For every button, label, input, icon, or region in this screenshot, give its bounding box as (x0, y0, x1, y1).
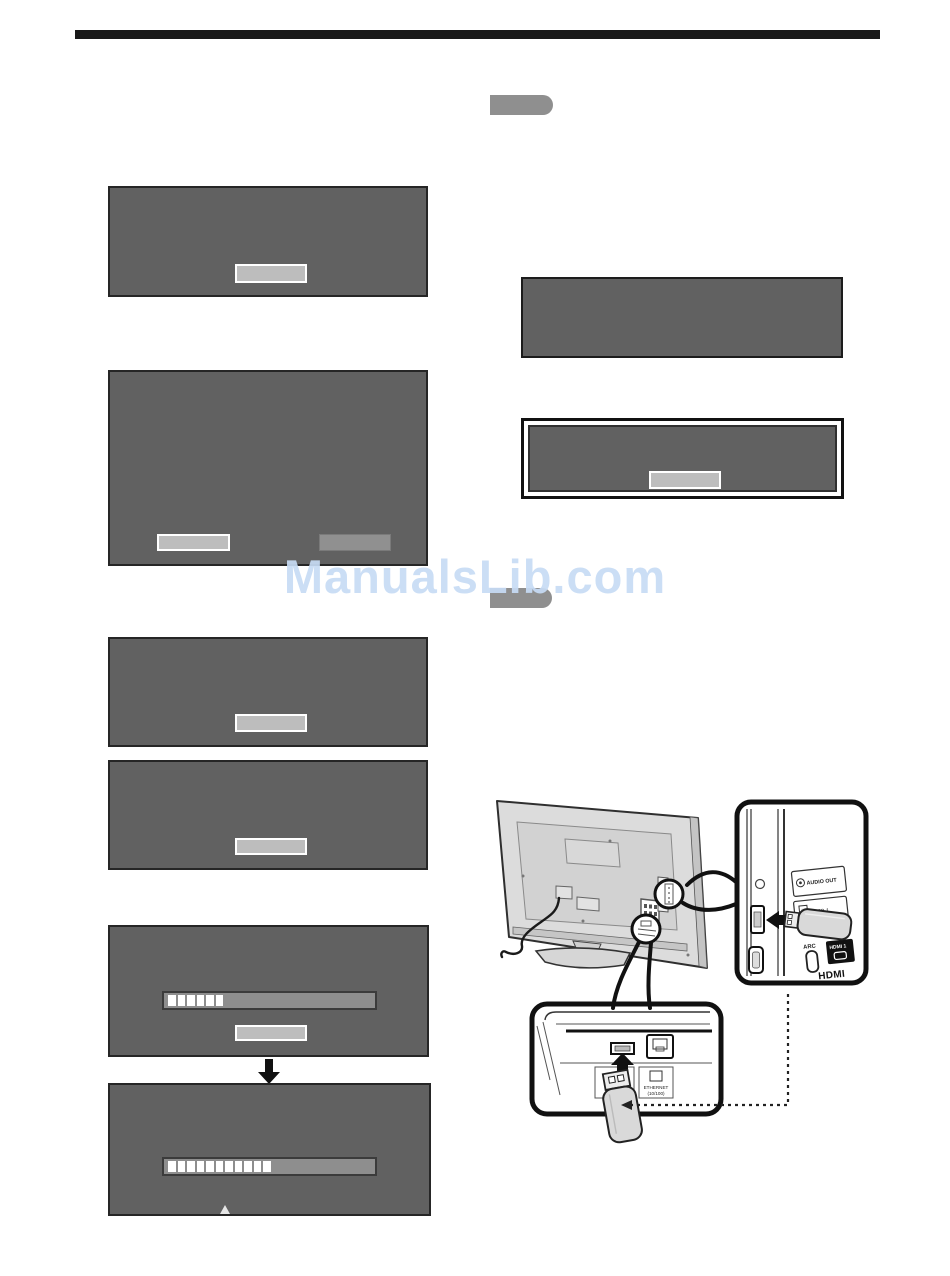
tv-rear-illustration (497, 801, 707, 968)
highlight-circle-rear-usb (632, 915, 660, 943)
header-rule (75, 30, 880, 39)
progress-segment (168, 1161, 176, 1172)
progress-segment (178, 1161, 186, 1172)
progress-segment (235, 1161, 243, 1172)
manualslib-watermark: ManualsLib.com (284, 549, 666, 604)
osd-dialog-1 (108, 186, 428, 297)
progress-segment (216, 995, 224, 1006)
progress-segment (178, 995, 186, 1006)
progress-segment (197, 995, 205, 1006)
section-tab-1 (490, 95, 553, 115)
progress-segment (244, 1161, 252, 1172)
progress-bar-1 (162, 991, 377, 1010)
osd-message-box-right (521, 277, 843, 358)
progress-bar-2 (162, 1157, 377, 1176)
osd-button-highlighted (235, 838, 307, 855)
callout-pointer-right (648, 943, 651, 1008)
osd-button-highlighted (649, 471, 721, 489)
osd-framed-box (521, 418, 844, 499)
progress-segment (254, 1161, 262, 1172)
ethernet-jack-icon (650, 1071, 662, 1081)
tv-stand (536, 948, 630, 968)
osd-dialog-3 (108, 637, 428, 747)
progress-segment (197, 1161, 205, 1172)
osd-button-highlighted (235, 264, 307, 283)
player-ethernet-port (647, 1035, 673, 1058)
osd-framed-box-inner (528, 425, 837, 492)
ethernet-label: ETHERNET (644, 1085, 669, 1090)
flow-down-arrow-icon (258, 1059, 280, 1084)
osd-dialog-4 (108, 760, 428, 870)
progress-segment (168, 995, 176, 1006)
progress-segment (263, 1161, 271, 1172)
osd-dialog-progress-2 (108, 1083, 431, 1216)
osd-button-highlighted (235, 1025, 307, 1041)
progress-segment (187, 1161, 195, 1172)
osd-button-highlighted (157, 534, 230, 551)
progress-segment (216, 1161, 224, 1172)
osd-button-highlighted (235, 714, 307, 732)
tv-side-callout: AUDIO OUT USB 1 ARC HDMI 1 HDMI (737, 802, 866, 984)
usb-connection-diagram: AUDIO OUT USB 1 ARC HDMI 1 HDMI (480, 785, 880, 1150)
progress-segment (206, 1161, 214, 1172)
manual-page: ManualsLib.com (0, 0, 950, 1276)
progress-segment (206, 995, 214, 1006)
osd-dialog-progress-1 (108, 925, 429, 1057)
warning-triangle-icon (220, 1205, 230, 1214)
progress-segment (187, 995, 195, 1006)
arc-hdmi-port (806, 950, 819, 972)
ethernet-speed-label: (10/100) (647, 1091, 665, 1096)
screw-icon (756, 880, 765, 889)
osd-dialog-2 (108, 370, 428, 566)
progress-segment (225, 1161, 233, 1172)
